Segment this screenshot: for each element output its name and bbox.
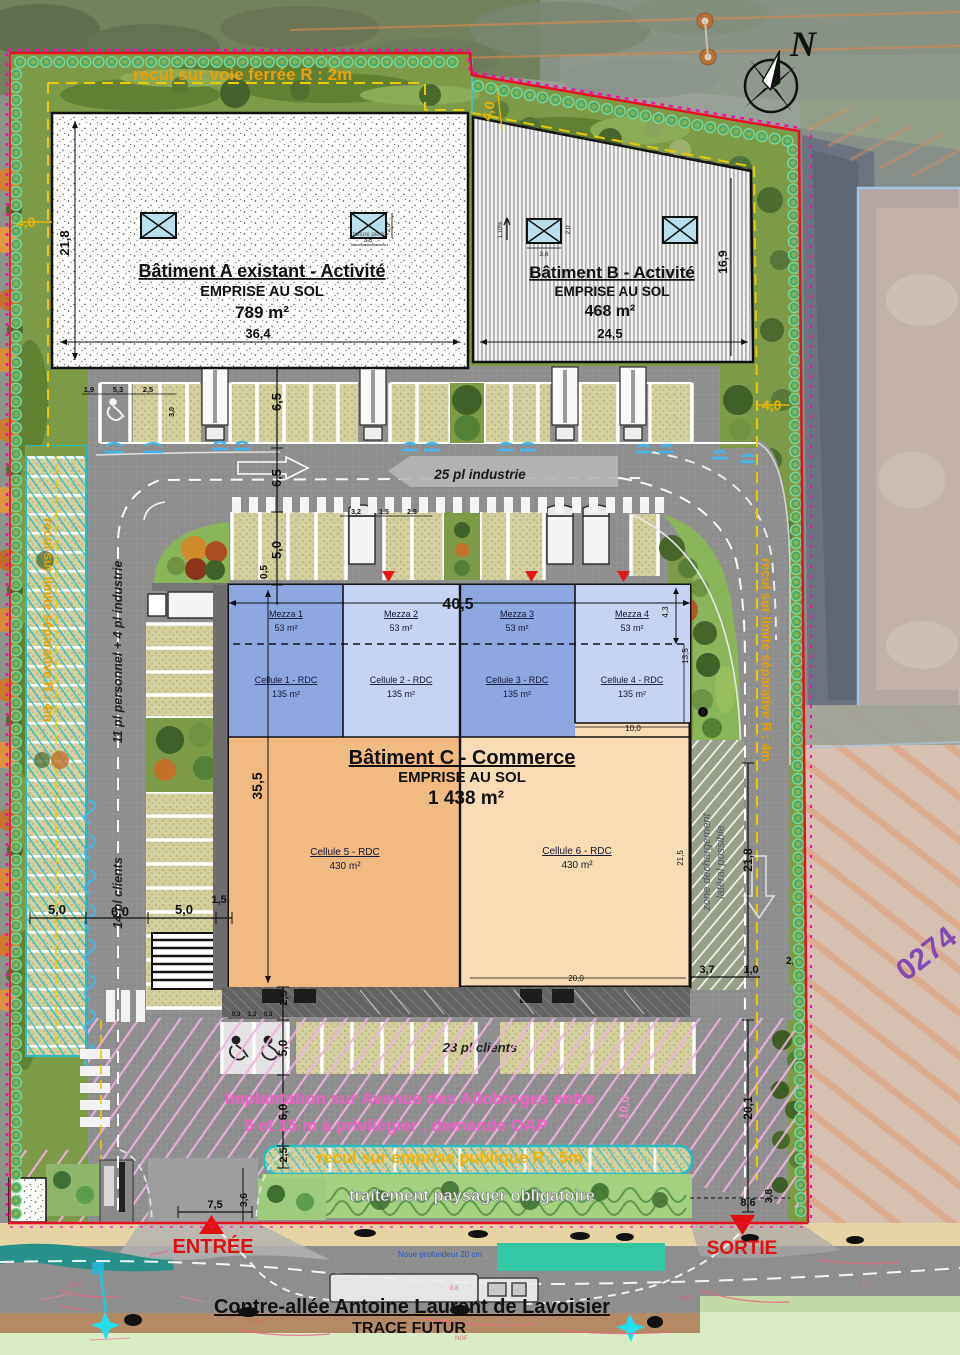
svg-text:3,0: 3,0 [169, 407, 176, 417]
svg-text:3,2: 3,2 [351, 509, 361, 516]
svg-text:Cellule 3 - RDC: Cellule 3 - RDC [486, 675, 549, 685]
svg-text:Mezza 3: Mezza 3 [500, 609, 534, 619]
svg-text:8,6: 8,6 [740, 1197, 755, 1209]
svg-text:Bâtiment C - Commerce: Bâtiment C - Commerce [349, 747, 576, 769]
svg-text:zone déchargement: zone déchargement [701, 812, 713, 911]
svg-text:1,3: 1,3 [248, 1012, 257, 1018]
svg-text:21,8: 21,8 [57, 230, 72, 255]
svg-text:2,5: 2,5 [143, 385, 153, 394]
svg-text:Cellule 1 - RDC: Cellule 1 - RDC [255, 675, 318, 685]
svg-text:10,0: 10,0 [625, 724, 641, 733]
svg-text:53 m²: 53 m² [505, 623, 528, 633]
svg-text:135 m²: 135 m² [387, 689, 415, 699]
svg-text:recul sur limite séparative R: recul sur limite séparative R : 4m [41, 518, 56, 722]
svg-text:13,5: 13,5 [681, 648, 690, 664]
svg-text:2,5: 2,5 [278, 1147, 290, 1162]
svg-text:EMPRISE AU SOL: EMPRISE AU SOL [200, 284, 324, 300]
svg-text:11 pl personnel + 4 pl industr: 11 pl personnel + 4 pl industrie [111, 561, 125, 744]
svg-text:N: N [789, 24, 818, 64]
svg-text:21,5: 21,5 [676, 850, 685, 866]
svg-text:5,0: 5,0 [276, 1039, 290, 1056]
svg-text:2,0: 2,0 [385, 223, 392, 232]
svg-text:24,5: 24,5 [597, 326, 622, 341]
svg-text:EMPRISE AU SOL: EMPRISE AU SOL [398, 769, 526, 786]
svg-text:36,4: 36,4 [245, 326, 271, 341]
svg-text:3,6: 3,6 [539, 251, 548, 258]
svg-text:2,0: 2,0 [565, 225, 572, 234]
svg-text:5 et 15 m à privilégier , dema: 5 et 15 m à privilégier , demande OAP [244, 1116, 547, 1135]
svg-text:0.8: 0.8 [450, 1286, 459, 1292]
svg-text:2,5: 2,5 [278, 990, 290, 1005]
svg-text:1 438 m²: 1 438 m² [428, 788, 504, 809]
svg-text:2.14: 2.14 [680, 1296, 692, 1302]
svg-text:5,0: 5,0 [48, 902, 66, 917]
svg-text:53 m²: 53 m² [274, 623, 297, 633]
svg-text:20,1: 20,1 [741, 1096, 755, 1120]
svg-text:1,0: 1,0 [743, 964, 758, 976]
svg-text:2,5: 2,5 [407, 509, 417, 516]
svg-text:25 pl industrie: 25 pl industrie [433, 467, 526, 482]
svg-text:recul sur emprise publique R :: recul sur emprise publique R : 5m [317, 1149, 583, 1167]
svg-text:Mezza 1: Mezza 1 [269, 609, 303, 619]
svg-text:5,3: 5,3 [113, 385, 123, 394]
svg-text:430 m²: 430 m² [561, 860, 593, 871]
svg-text:Cellule 5 - RDC: Cellule 5 - RDC [310, 847, 379, 858]
svg-text:Mezza 2: Mezza 2 [384, 609, 418, 619]
svg-text:1.9: 1.9 [860, 1282, 869, 1288]
svg-text:468 m²: 468 m² [585, 303, 636, 320]
svg-text:1,10%: 1,10% [498, 221, 504, 239]
svg-text:6,5: 6,5 [269, 469, 284, 487]
svg-text:1,5: 1,5 [211, 894, 226, 906]
svg-text:789 m²: 789 m² [235, 303, 289, 322]
svg-text:135 m²: 135 m² [503, 689, 531, 699]
svg-text:6,5: 6,5 [269, 393, 284, 411]
svg-text:recul sur limite séparative R: recul sur limite séparative R : 4m [759, 558, 774, 762]
svg-text:traitement paysager obligatoir: traitement paysager obligatoire [349, 1187, 595, 1205]
svg-text:Cellule 2 - RDC: Cellule 2 - RDC [370, 675, 433, 685]
svg-text:14 pl clients: 14 pl clients [111, 857, 125, 929]
svg-text:1,9: 1,9 [84, 385, 94, 394]
svg-text:Noue profondeur 20 cm: Noue profondeur 20 cm [398, 1250, 482, 1259]
svg-text:Cellule 6 - RDC: Cellule 6 - RDC [542, 846, 611, 857]
svg-text:21,8: 21,8 [741, 848, 755, 872]
svg-text:7,5: 7,5 [207, 1199, 222, 1211]
svg-text:40,5: 40,5 [442, 596, 473, 613]
svg-text:3,6: 3,6 [239, 1193, 250, 1207]
svg-text:5,0: 5,0 [175, 902, 193, 917]
svg-text:ENTRÉE: ENTRÉE [172, 1235, 253, 1258]
svg-text:53 m²: 53 m² [389, 623, 412, 633]
svg-text:3,8: 3,8 [764, 1189, 775, 1203]
svg-text:Implantation sur Avenue des Al: Implantation sur Avenue des Allobroges e… [225, 1089, 595, 1108]
svg-text:3,7: 3,7 [699, 964, 714, 976]
svg-text:53 m²: 53 m² [620, 623, 643, 633]
svg-text:EMPRISE AU SOL: EMPRISE AU SOL [554, 284, 669, 299]
svg-text:35,5: 35,5 [249, 772, 265, 799]
svg-text:135 m²: 135 m² [272, 689, 300, 699]
svg-text:0,5: 0,5 [259, 565, 270, 579]
svg-text:Cellule 4 - RDC: Cellule 4 - RDC [601, 675, 664, 685]
svg-text:1,5: 1,5 [379, 509, 389, 516]
svg-text:20,0: 20,0 [568, 974, 584, 983]
svg-text:Contre-allée Antoine Laurent d: Contre-allée Antoine Laurent de Lavoisie… [214, 1296, 610, 1318]
svg-text:1.80: 1.80 [250, 1320, 262, 1326]
svg-text:SORTIE: SORTIE [707, 1238, 778, 1259]
svg-text:TRACE FUTUR: TRACE FUTUR [352, 1320, 466, 1337]
svg-text:3,6: 3,6 [363, 237, 372, 244]
svg-text:latéral possible: latéral possible [715, 825, 727, 898]
svg-text:10,0: 10,0 [616, 1095, 633, 1120]
svg-text:16,9: 16,9 [716, 250, 730, 274]
svg-text:0,3: 0,3 [232, 1012, 241, 1018]
svg-text:Bâtiment A existant - Activité: Bâtiment A existant - Activité [138, 261, 385, 281]
svg-text:p.12: p.12 [70, 1282, 82, 1288]
svg-text:5,0: 5,0 [269, 541, 284, 559]
svg-text:430 m²: 430 m² [329, 861, 361, 872]
svg-text:0,3: 0,3 [264, 1012, 273, 1018]
svg-text:Bâtiment B - Activité: Bâtiment B - Activité [529, 263, 695, 282]
svg-text:Mezza 4: Mezza 4 [615, 609, 649, 619]
svg-text:4,3: 4,3 [661, 606, 670, 618]
svg-text:135 m²: 135 m² [618, 689, 646, 699]
